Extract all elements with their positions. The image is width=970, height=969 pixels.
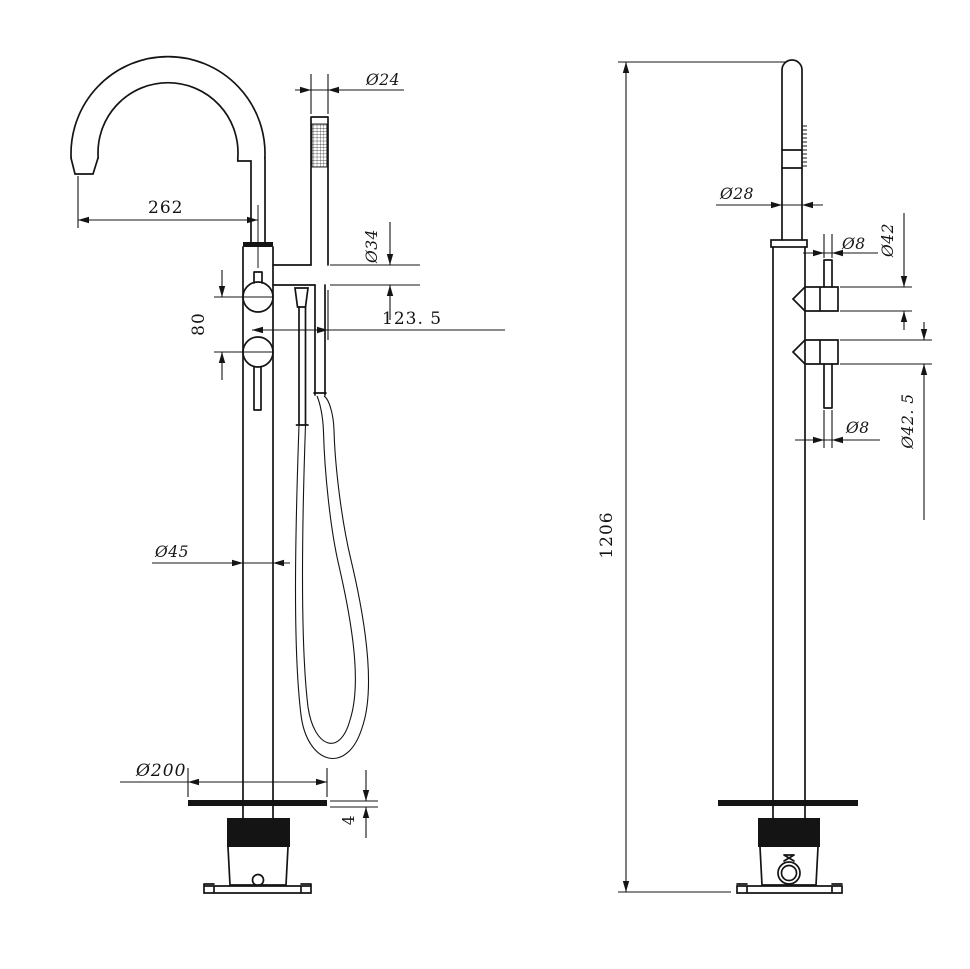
dim-label-stem-diameter-top: Ø8: [841, 235, 866, 253]
base-housing: [228, 847, 288, 885]
dim-label-stem-diameter-bottom: Ø8: [845, 419, 870, 437]
dim-label-hose-offset: 123. 5: [382, 309, 442, 329]
column-flange: [771, 240, 807, 247]
tube-joint-lines: [782, 150, 802, 168]
dim-label-spout-reach: 262: [148, 198, 183, 218]
dim-base-plate-thickness: 4: [330, 770, 378, 838]
dim-spout-reach: 262: [78, 176, 258, 228]
dim-stem-diameter-top: Ø8: [803, 234, 878, 258]
dim-label-handspray-diameter: Ø24: [365, 71, 400, 89]
dim-label-base-diameter: Ø200: [135, 761, 186, 781]
floor-flange: [204, 884, 311, 893]
wand-holder-arm: [273, 265, 326, 425]
wand-tail: [297, 307, 309, 425]
temperature-handle-upper: [243, 272, 273, 312]
hose-cone-nut: [295, 288, 308, 307]
handle-stem-lower-side: [824, 364, 832, 408]
shower-hose-loop: [296, 396, 369, 758]
handle-stem-upper-side: [824, 260, 832, 287]
dim-label-handle-diameter-upper: Ø42: [879, 223, 897, 258]
faucet-technical-drawing: Ø24 262 Ø34 80 123. 5: [0, 0, 970, 969]
side-riser-tube: [782, 60, 807, 240]
dim-column-diameter: Ø45: [152, 543, 290, 566]
dim-holder-diameter: Ø34: [330, 222, 420, 320]
side-column: [771, 240, 807, 818]
dim-label-column-diameter: Ø45: [154, 543, 189, 561]
dim-overall-height: 1206: [597, 62, 786, 892]
dim-label-handle-spacing: 80: [189, 312, 209, 336]
dim-label-base-plate-thickness: 4: [340, 815, 358, 825]
dim-label-riser-diameter: Ø28: [719, 185, 754, 203]
side-view: Ø28 Ø8 Ø42 Ø42. 5 Ø8: [597, 60, 932, 893]
dim-handspray-diameter: Ø24: [295, 71, 404, 114]
dim-riser-diameter: Ø28: [716, 185, 823, 208]
base-cover-plate: [188, 800, 327, 806]
handle-lever-lower: [254, 367, 261, 410]
side-floor-base: [718, 800, 858, 893]
temperature-handle-lower: [243, 337, 273, 410]
inlet-valve-detail: [784, 855, 794, 861]
front-view: Ø24 262 Ø34 80 123. 5: [71, 57, 505, 893]
technical-drawing-sheet: Ø24 262 Ø34 80 123. 5: [0, 0, 970, 969]
dim-hose-offset: 123. 5: [252, 290, 505, 340]
dim-handle-diameter-upper: Ø42: [840, 213, 912, 330]
riser-pipe: [238, 158, 265, 242]
shower-head-grid: [312, 124, 327, 167]
side-handle-upper: [793, 260, 838, 311]
inlet-fitting: [253, 875, 264, 886]
dim-label-handle-diameter-lower: Ø42. 5: [899, 393, 917, 449]
dim-handle-spacing: 80: [189, 270, 273, 380]
side-handle-lower: [793, 340, 838, 408]
spout-nozzle: [71, 158, 98, 174]
dim-label-overall-height: 1206: [597, 511, 617, 558]
side-base-cover-plate: [718, 800, 858, 806]
side-floor-flange: [737, 884, 842, 893]
handshower-wand: [311, 117, 328, 265]
hose-outlet-connector: [314, 285, 326, 395]
dim-base-diameter: Ø200: [120, 761, 327, 797]
dim-stem-diameter-bottom: Ø8: [795, 410, 880, 448]
side-mounting-block: [758, 818, 820, 847]
dim-label-holder-diameter: Ø34: [363, 229, 381, 264]
mounting-block: [227, 818, 290, 847]
floor-base: [188, 800, 327, 893]
